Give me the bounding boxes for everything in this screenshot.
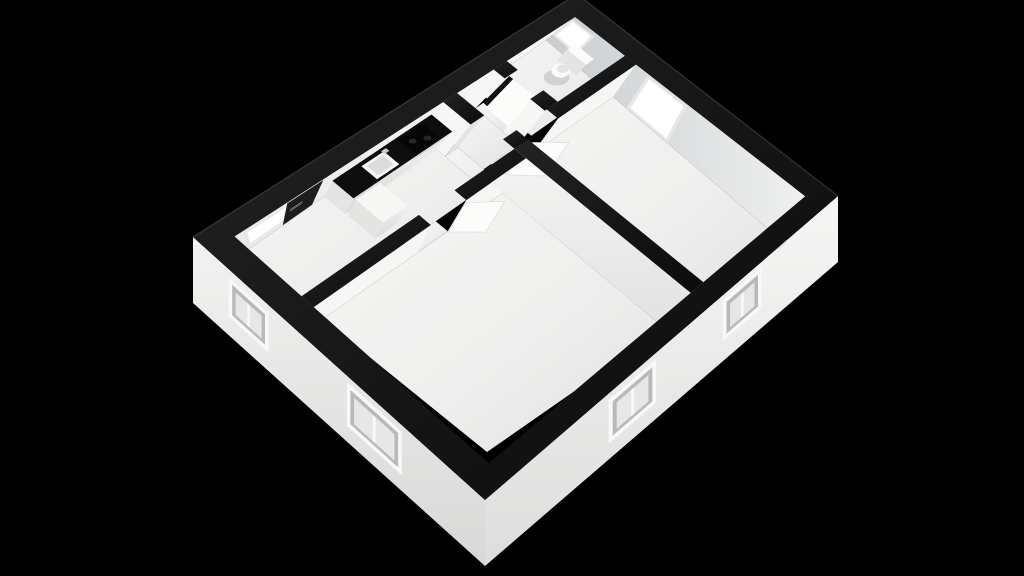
bedroom-exterior-window-west-mullion [373,415,376,444]
floor-plan-svg [0,0,1024,576]
living-exterior-window-south-mullion [741,292,744,318]
burner-rear [424,136,432,141]
entrance-exterior-window-mullion [247,303,250,328]
bedroom-exterior-window-south-mullion [631,387,634,416]
toilet-seat [557,65,569,73]
floor-plan-3d-view [0,0,1024,576]
burner-front [409,139,417,144]
